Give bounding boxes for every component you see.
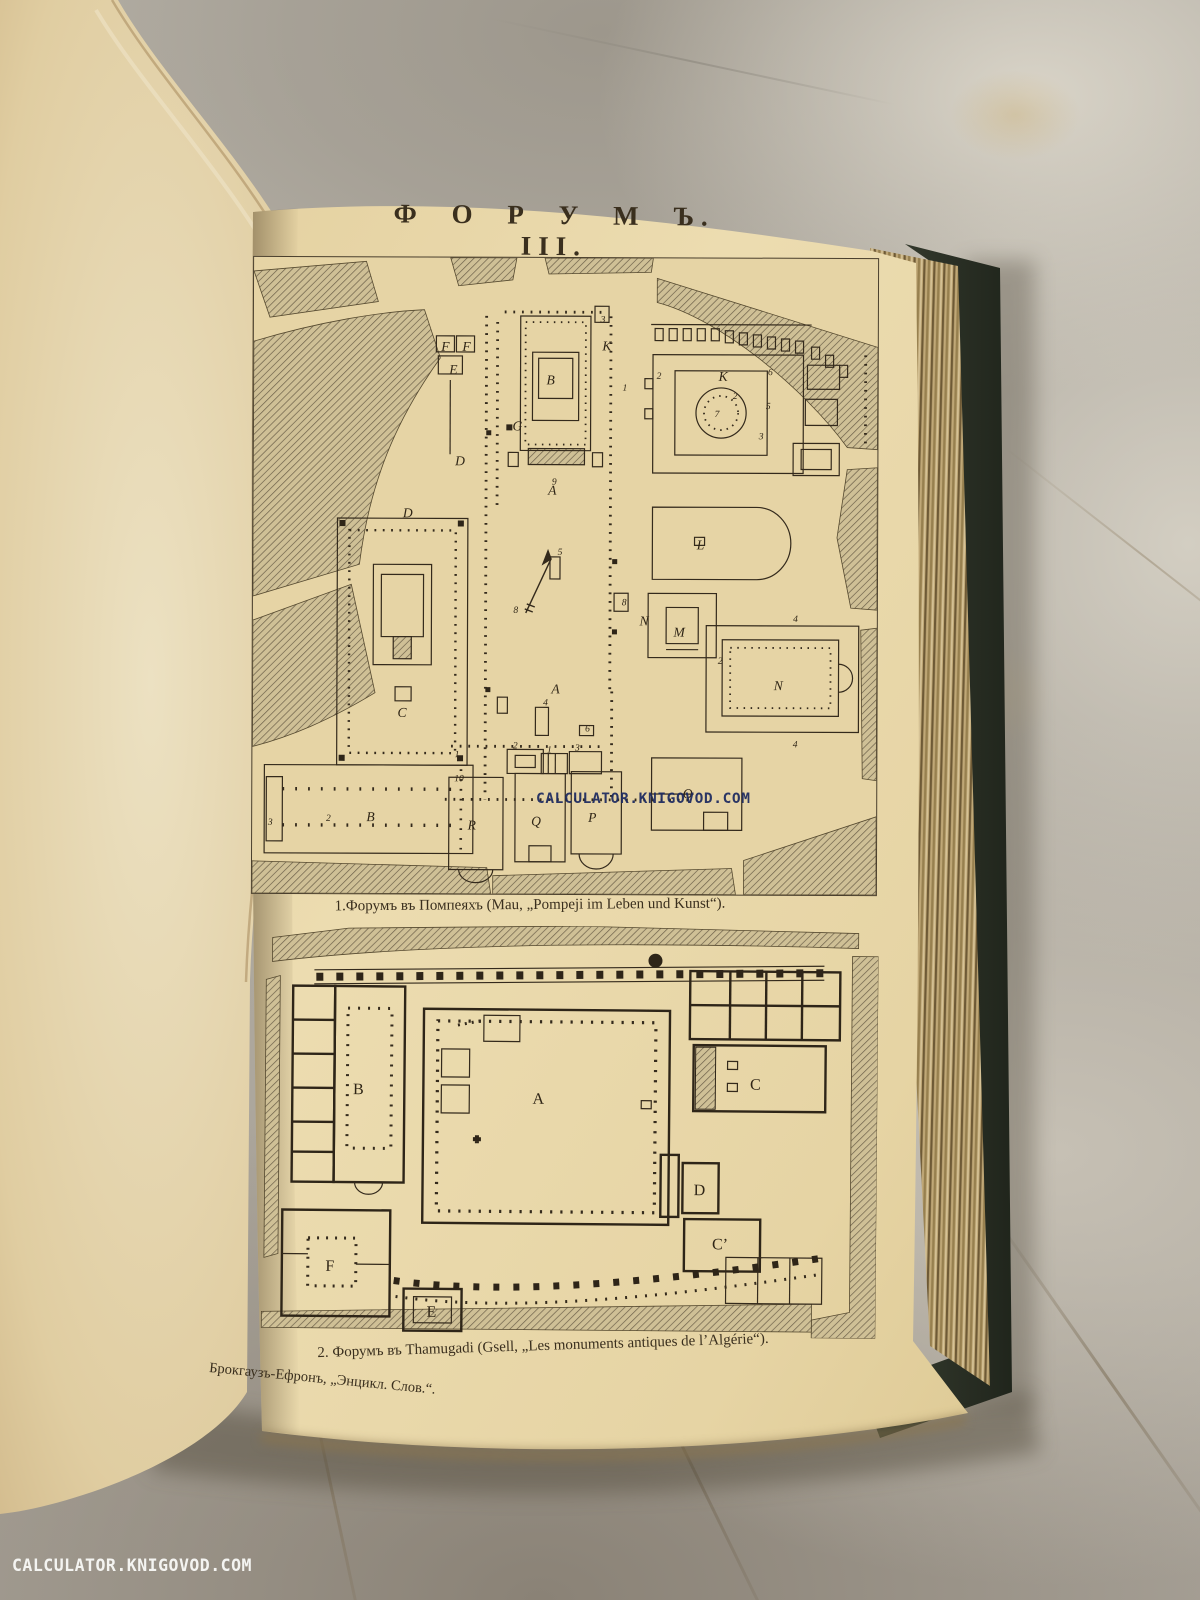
plan-label: 8 [622, 598, 627, 608]
plan-label: K [601, 338, 612, 353]
plan-label: G [512, 418, 522, 433]
plan-label: D [454, 453, 465, 468]
watermark-center: CALCULATOR.KNIGOVOD.COM [536, 791, 751, 807]
plan-label: N [639, 613, 650, 628]
plan-label: E [448, 362, 458, 377]
plan-label: C [397, 705, 407, 720]
plan-label: E [426, 1304, 436, 1321]
plan-label: 3 [267, 818, 273, 828]
building-f [281, 1210, 390, 1317]
plan-label: 1 [622, 384, 627, 394]
plan-label: A [550, 681, 560, 696]
plan1-letter-labels: FFEGDDBKKLMNNOCBRQPAA [366, 338, 785, 834]
plan-label: K [718, 369, 729, 384]
plan-label: C’ [712, 1236, 728, 1253]
plan-label: D [402, 505, 413, 520]
plan-label: 5 [766, 402, 771, 412]
plan-label: 3 [574, 744, 580, 754]
east-buildings [660, 971, 841, 1305]
plate-title: Ф О Р У М Ъ. III. [368, 198, 741, 264]
plate-1-caption: 1.Форумъ въ Помпеяхъ (Mau, „Pompeji im L… [288, 895, 772, 915]
temple-b [508, 306, 609, 467]
plan-label: B [366, 809, 374, 824]
plaza-monuments [485, 424, 629, 774]
plan-label: 9 [552, 478, 557, 488]
plan-label: 7 [715, 410, 721, 420]
plan-label: C [750, 1077, 761, 1094]
plan-label: R [467, 817, 477, 832]
plan-label: 3 [758, 432, 764, 442]
plan-label: D [694, 1182, 706, 1199]
plan-label: B [546, 372, 554, 387]
building-l [652, 507, 791, 580]
plan-label: 6 [585, 725, 590, 735]
plan-label: Q [531, 814, 541, 829]
plan-label: M [672, 625, 685, 640]
plan-label: 8 [513, 606, 518, 616]
plan-label: 1 [547, 745, 552, 755]
plan-label: 5 [558, 548, 563, 558]
plan-label: 6 [768, 368, 773, 378]
top-colonnade [314, 951, 824, 988]
north-arrow [525, 551, 551, 613]
plan-label: L [696, 537, 705, 552]
photo-scene: Ф О Р У М Ъ. III. [0, 0, 1200, 1600]
plan-label: 2 [326, 814, 331, 824]
watermark-corner: CALCULATOR.KNIGOVOD.COM [12, 1556, 252, 1575]
plan-label: F [325, 1258, 334, 1275]
thamugadi-plan-drawing: BACDC’FE [255, 923, 879, 1338]
plan-label: 2 [733, 392, 738, 402]
plan-label: F [440, 339, 450, 354]
forum-square-a [422, 1009, 670, 1225]
plan-label: 2 [657, 372, 662, 382]
building-b [291, 986, 405, 1195]
plan-label: N [773, 678, 784, 693]
plan-label: 3 [600, 315, 606, 325]
plan-label: B [353, 1081, 364, 1098]
plan-label: F [461, 339, 471, 354]
plate-2-thamugadi: BACDC’FE [255, 923, 879, 1338]
plan-label: 4 [793, 740, 798, 750]
plan-label: P [587, 810, 596, 825]
plan-label: 2 [718, 657, 723, 667]
plan-label: A [532, 1091, 544, 1108]
plan-label: 4 [543, 698, 548, 708]
plan-label: 2 [513, 741, 518, 751]
plan-label: 10 [454, 774, 464, 784]
plan-label: 1 [455, 750, 460, 760]
plan-label: 4 [793, 615, 798, 625]
